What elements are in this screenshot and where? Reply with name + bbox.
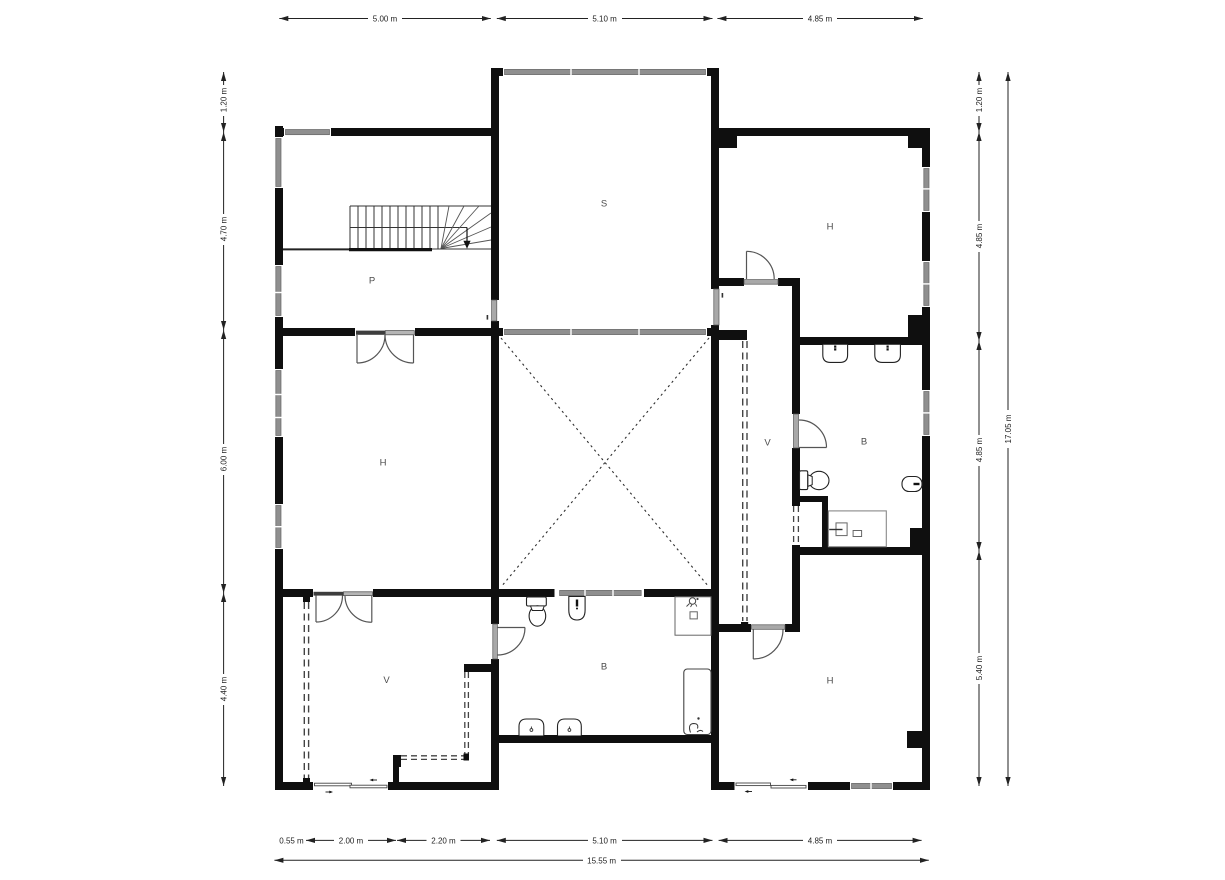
svg-text:1.20 m: 1.20 m <box>219 87 228 112</box>
svg-text:4.85 m: 4.85 m <box>975 223 984 248</box>
svg-text:1.20 m: 1.20 m <box>975 87 984 112</box>
svg-text:H: H <box>827 221 834 232</box>
svg-text:5.00 m: 5.00 m <box>373 15 398 24</box>
svg-text:5.40 m: 5.40 m <box>975 655 984 680</box>
svg-text:4.85 m: 4.85 m <box>808 15 833 24</box>
svg-text:H: H <box>380 457 387 468</box>
svg-text:P: P <box>369 275 375 286</box>
svg-text:V: V <box>764 437 771 448</box>
svg-text:6.00 m: 6.00 m <box>219 446 228 471</box>
svg-text:17.05 m: 17.05 m <box>1004 414 1013 443</box>
svg-text:4.70 m: 4.70 m <box>219 216 228 241</box>
svg-text:V: V <box>383 675 390 686</box>
svg-text:S: S <box>601 198 607 209</box>
svg-text:4.40 m: 4.40 m <box>219 676 228 701</box>
svg-text:B: B <box>601 661 607 672</box>
svg-text:2.00 m: 2.00 m <box>339 836 364 845</box>
svg-text:B: B <box>861 436 867 447</box>
svg-text:5.10 m: 5.10 m <box>592 836 617 845</box>
svg-text:H: H <box>827 675 834 686</box>
svg-text:4.85 m: 4.85 m <box>808 836 833 845</box>
svg-text:0.55 m: 0.55 m <box>279 836 304 845</box>
svg-text:4.85 m: 4.85 m <box>975 437 984 462</box>
svg-text:15.55 m: 15.55 m <box>587 856 616 865</box>
svg-text:5.10 m: 5.10 m <box>592 15 617 24</box>
svg-text:2.20 m: 2.20 m <box>431 836 456 845</box>
